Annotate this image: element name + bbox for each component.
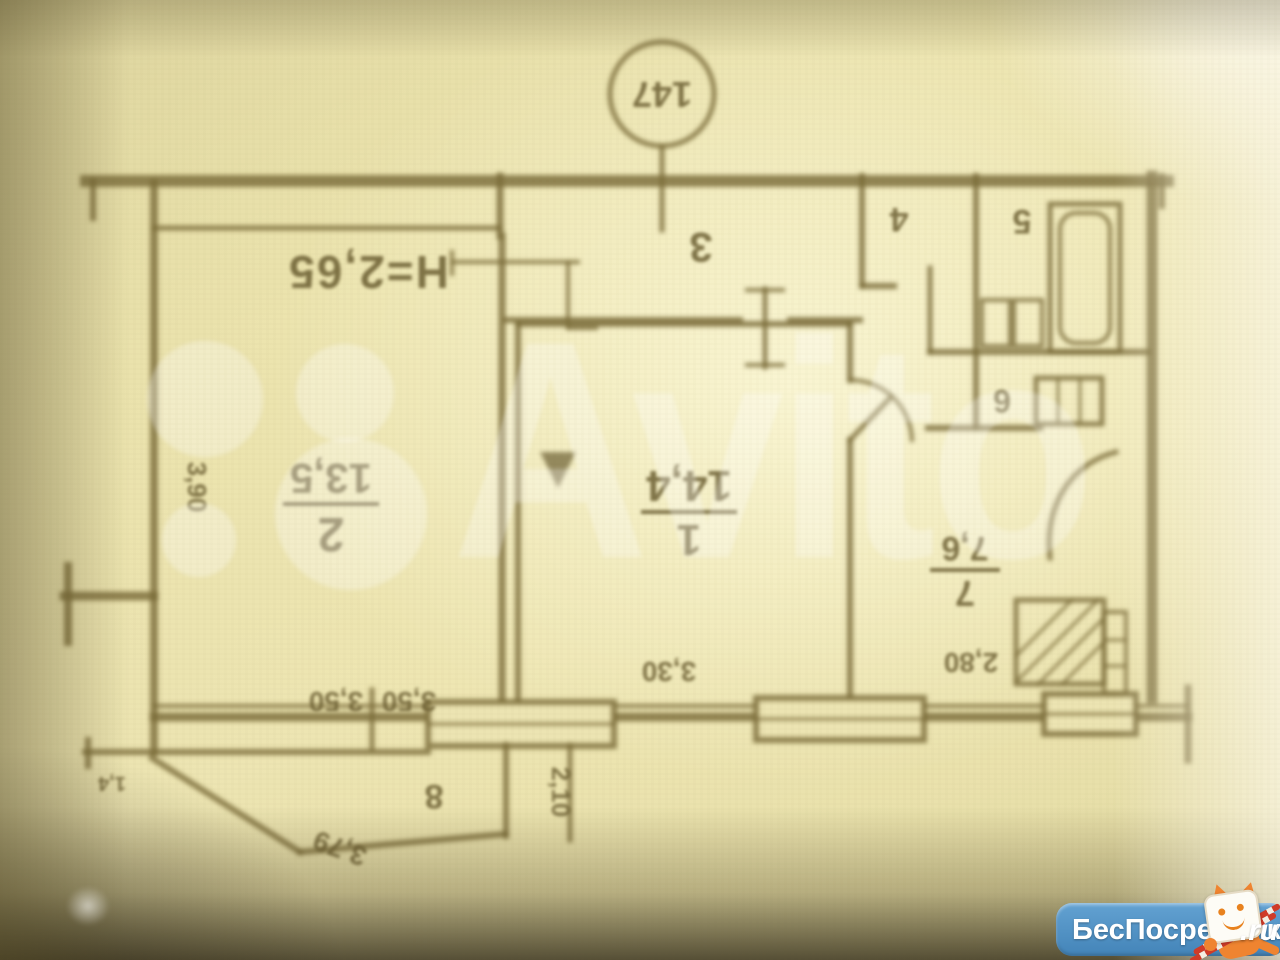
cat-paw <box>1204 938 1217 951</box>
light-spot <box>66 886 110 926</box>
floorplan-photo: 147 H=2,65 3 4 5 6 2 13,5 1 14,4 7 7,6 8… <box>0 0 1280 960</box>
cat-eye <box>1236 903 1244 911</box>
besposrednika-tld: .ru <box>1240 914 1278 948</box>
cat-eye <box>1218 908 1226 916</box>
avito-watermark: Avito <box>452 295 1089 605</box>
